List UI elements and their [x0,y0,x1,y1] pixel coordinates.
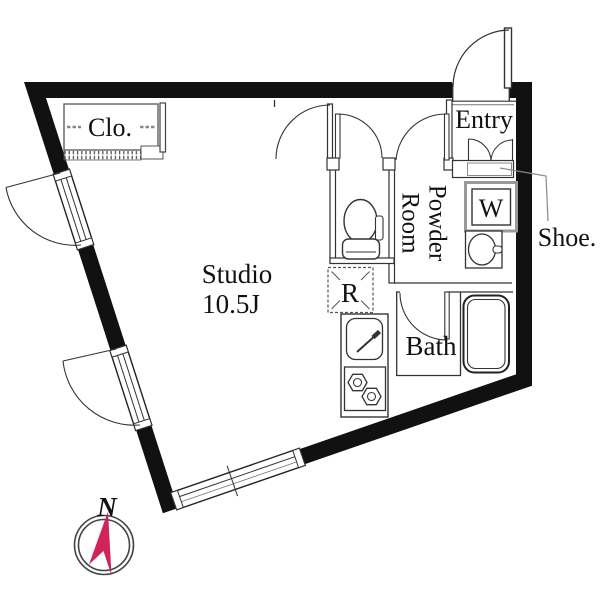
closet: Clo. [64,103,166,160]
fridge-label: R [341,278,359,308]
left-window-upper-leaf [6,173,60,188]
entry-door-leaf [505,28,512,88]
bath-label: Bath [406,331,457,361]
floor-plan-svg: Clo. [0,0,600,600]
entry-label: Entry [455,105,513,134]
washer-label: W [479,194,504,223]
entry-door [452,28,517,105]
compass: N [75,492,134,576]
floor-plan: Clo. [0,0,600,600]
wall-stub [160,103,166,152]
entry-door-swing-arc [453,30,509,87]
stove [345,367,386,411]
compass-n-label: N [96,492,118,522]
left-window-lower-leaf [63,349,116,361]
studio-label: Studio [202,259,273,289]
closet-label: Clo. [88,113,132,142]
kitchen-sink [347,319,383,360]
powder-room-label-line2: Room [397,192,424,254]
studio-size-label: 10.5J [202,289,260,319]
kitchen-counter [341,314,388,417]
shoe-label: Shoe. [538,223,597,252]
washbasin [466,231,503,268]
closet-louver-strip [64,150,141,160]
powder-room-label-line1: Powder [424,185,451,262]
bathtub [464,296,510,373]
